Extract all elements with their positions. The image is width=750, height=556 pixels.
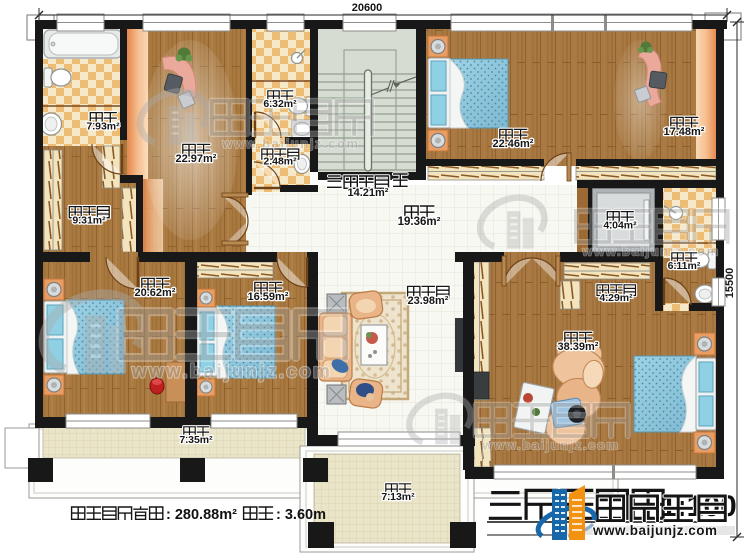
svg-text:www.baijunjz.com: www.baijunjz.com	[592, 523, 718, 538]
svg-text:7.35m²: 7.35m²	[179, 434, 213, 446]
svg-text:www.baijunjz.com: www.baijunjz.com	[481, 438, 619, 453]
svg-text:4.04m²: 4.04m²	[603, 219, 637, 231]
svg-text:17.48m²: 17.48m²	[664, 126, 705, 138]
svg-text:22.97m²: 22.97m²	[176, 153, 217, 165]
svg-text:2.48m²: 2.48m²	[263, 156, 297, 168]
svg-text:14.21m²: 14.21m²	[348, 187, 389, 199]
svg-text:15500: 15500	[724, 268, 736, 299]
svg-text:23.98m²: 23.98m²	[408, 295, 449, 307]
svg-text:16.59m²: 16.59m²	[248, 291, 289, 303]
svg-text:6.11m²: 6.11m²	[668, 260, 701, 272]
svg-text:www.baijunjz.com: www.baijunjz.com	[131, 362, 332, 383]
svg-text:6.32m²: 6.32m²	[263, 98, 297, 110]
svg-text:38.39m²: 38.39m²	[558, 341, 599, 353]
svg-text:www.baijunjz.com: www.baijunjz.com	[581, 244, 719, 259]
svg-text:9.31m²: 9.31m²	[72, 214, 106, 226]
svg-text:20600: 20600	[352, 2, 383, 14]
svg-text:22.46m²: 22.46m²	[493, 138, 534, 150]
svg-text:7.13m²: 7.13m²	[381, 491, 415, 503]
svg-text:: 3.60m: : 3.60m	[276, 507, 326, 523]
svg-text:7.93m²: 7.93m²	[86, 120, 120, 132]
svg-text:19.36m²: 19.36m²	[398, 216, 441, 228]
svg-text:4.29m²: 4.29m²	[599, 292, 633, 304]
svg-text:20.62m²: 20.62m²	[135, 287, 176, 299]
svg-text:: 280.88m²: : 280.88m²	[166, 507, 237, 523]
